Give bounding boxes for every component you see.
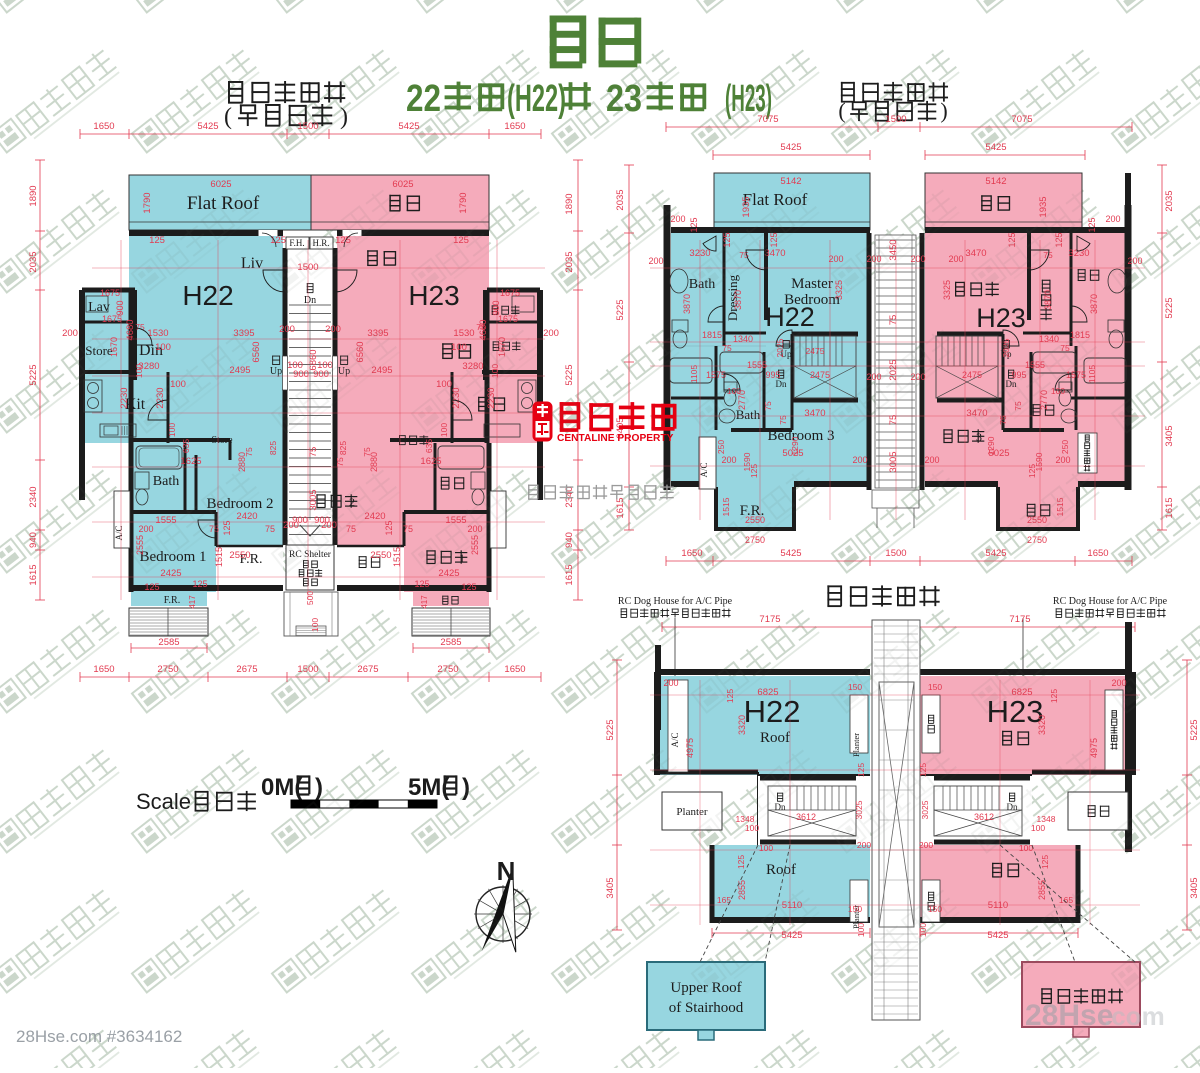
svg-text:5025: 5025 bbox=[782, 448, 803, 459]
svg-text:5225: 5225 bbox=[1189, 719, 1200, 740]
svg-text:3870: 3870 bbox=[1043, 290, 1053, 310]
svg-text:RC Dog House for A/C Pipe: RC Dog House for A/C Pipe bbox=[1053, 596, 1168, 607]
svg-text:75: 75 bbox=[722, 343, 732, 353]
svg-text:125: 125 bbox=[736, 855, 746, 869]
svg-text:125: 125 bbox=[270, 235, 286, 246]
svg-text:6825: 6825 bbox=[757, 687, 778, 698]
svg-text:H22: H22 bbox=[765, 302, 815, 332]
svg-text:75: 75 bbox=[763, 401, 773, 411]
svg-text:2855: 2855 bbox=[737, 880, 747, 900]
svg-text:75: 75 bbox=[308, 447, 319, 458]
svg-text:3325: 3325 bbox=[942, 280, 952, 300]
svg-text:75: 75 bbox=[888, 415, 899, 426]
svg-text:3870: 3870 bbox=[1089, 294, 1099, 314]
svg-text:125: 125 bbox=[414, 579, 429, 589]
svg-text:3870: 3870 bbox=[682, 294, 692, 314]
svg-text:Dn: Dn bbox=[304, 295, 316, 306]
svg-text:6025: 6025 bbox=[392, 179, 413, 190]
svg-text:200: 200 bbox=[924, 455, 939, 465]
svg-text:200: 200 bbox=[910, 254, 925, 264]
svg-text:(: ( bbox=[838, 98, 845, 123]
svg-text:3320: 3320 bbox=[1037, 715, 1047, 735]
svg-text:1340: 1340 bbox=[1039, 334, 1059, 344]
svg-text:200: 200 bbox=[138, 524, 153, 534]
svg-text:200: 200 bbox=[828, 254, 843, 264]
svg-text:F.H.: F.H. bbox=[289, 238, 304, 248]
svg-text:2425: 2425 bbox=[438, 568, 459, 579]
svg-text:125: 125 bbox=[725, 689, 735, 703]
svg-text:900: 900 bbox=[491, 300, 501, 315]
svg-text:3470: 3470 bbox=[804, 408, 825, 419]
svg-text:1555: 1555 bbox=[155, 515, 176, 526]
svg-text:125: 125 bbox=[1040, 855, 1050, 869]
svg-text:3612: 3612 bbox=[796, 812, 816, 822]
svg-text:5225: 5225 bbox=[615, 299, 626, 320]
svg-text:2475: 2475 bbox=[810, 370, 830, 380]
svg-text:635: 635 bbox=[424, 439, 434, 453]
svg-text:500: 500 bbox=[305, 591, 315, 605]
svg-text:5142: 5142 bbox=[780, 176, 801, 187]
svg-text:5025: 5025 bbox=[988, 448, 1009, 459]
svg-text:CENTALINE PROPERTY: CENTALINE PROPERTY bbox=[557, 433, 674, 444]
svg-text:2035: 2035 bbox=[1164, 190, 1175, 211]
svg-text:2025: 2025 bbox=[1001, 338, 1011, 357]
svg-text:Store: Store bbox=[211, 435, 233, 446]
svg-text:(H22): (H22) bbox=[507, 78, 566, 120]
svg-text:1105: 1105 bbox=[689, 365, 699, 384]
svg-text:200: 200 bbox=[857, 840, 871, 850]
svg-text:3470: 3470 bbox=[965, 248, 986, 259]
svg-text:A/C: A/C bbox=[699, 462, 709, 477]
svg-text:250: 250 bbox=[716, 440, 726, 454]
svg-text:1935: 1935 bbox=[741, 196, 752, 217]
svg-text:5110: 5110 bbox=[988, 900, 1008, 911]
svg-text:1790: 1790 bbox=[142, 192, 153, 213]
svg-text:22: 22 bbox=[406, 78, 441, 120]
svg-text:4975: 4975 bbox=[685, 738, 695, 758]
svg-text:125: 125 bbox=[192, 579, 207, 589]
svg-text:5425: 5425 bbox=[780, 548, 801, 559]
svg-text:0M(: 0M( bbox=[261, 774, 302, 801]
svg-text:5225: 5225 bbox=[605, 719, 616, 740]
svg-text:1890: 1890 bbox=[564, 193, 575, 214]
svg-text:125: 125 bbox=[384, 520, 394, 535]
svg-text:125: 125 bbox=[144, 582, 159, 592]
svg-text:635: 635 bbox=[181, 439, 191, 453]
svg-text:(: ( bbox=[224, 104, 232, 130]
svg-text:2585: 2585 bbox=[158, 637, 179, 648]
svg-text:200: 200 bbox=[948, 254, 963, 264]
svg-text:2675: 2675 bbox=[357, 664, 378, 675]
svg-text:2425: 2425 bbox=[160, 568, 181, 579]
svg-text:2420: 2420 bbox=[236, 511, 257, 522]
svg-text:Roof: Roof bbox=[766, 862, 796, 878]
svg-text:H22: H22 bbox=[744, 694, 801, 729]
svg-text:75: 75 bbox=[888, 315, 899, 326]
svg-text:3405: 3405 bbox=[1164, 425, 1175, 446]
svg-text:200: 200 bbox=[721, 455, 736, 465]
svg-text:3395: 3395 bbox=[233, 328, 254, 339]
svg-text:100: 100 bbox=[310, 618, 320, 632]
svg-text:3005: 3005 bbox=[888, 451, 899, 472]
svg-text:1515: 1515 bbox=[392, 547, 402, 567]
svg-text:995: 995 bbox=[1011, 370, 1026, 380]
svg-text:3405: 3405 bbox=[605, 877, 616, 898]
svg-text:150: 150 bbox=[848, 904, 862, 914]
svg-text:2585: 2585 bbox=[440, 637, 461, 648]
svg-text:125: 125 bbox=[461, 582, 476, 592]
svg-text:Up: Up bbox=[270, 366, 282, 377]
svg-text:75: 75 bbox=[403, 524, 413, 534]
svg-text:250: 250 bbox=[1060, 440, 1070, 454]
svg-text:200: 200 bbox=[670, 214, 685, 224]
svg-text:): ) bbox=[315, 774, 323, 801]
svg-text:100: 100 bbox=[759, 843, 773, 853]
svg-text:100: 100 bbox=[167, 423, 177, 437]
svg-text:3: 3 bbox=[976, 430, 982, 444]
svg-text:N: N bbox=[497, 856, 516, 886]
svg-text:1615: 1615 bbox=[28, 564, 39, 585]
svg-text:1675: 1675 bbox=[500, 288, 520, 298]
svg-text:Planter: Planter bbox=[851, 733, 861, 757]
svg-text:5142: 5142 bbox=[985, 176, 1006, 187]
svg-text:Bedroom 3: Bedroom 3 bbox=[767, 428, 834, 444]
svg-text:2340: 2340 bbox=[28, 486, 39, 507]
svg-text:5225: 5225 bbox=[564, 364, 575, 385]
svg-text:200: 200 bbox=[866, 372, 881, 382]
svg-text:28Hse: 28Hse bbox=[1025, 999, 1113, 1032]
svg-text:150: 150 bbox=[928, 682, 942, 692]
svg-text:825: 825 bbox=[268, 441, 278, 455]
svg-text:5225: 5225 bbox=[1164, 297, 1175, 318]
svg-text:3025: 3025 bbox=[920, 800, 930, 819]
svg-text:125: 125 bbox=[222, 520, 232, 535]
svg-text:75: 75 bbox=[362, 447, 372, 457]
svg-text:75: 75 bbox=[335, 457, 345, 467]
svg-text:2230: 2230 bbox=[486, 387, 497, 408]
svg-text:100: 100 bbox=[439, 423, 449, 437]
svg-text:75: 75 bbox=[265, 524, 275, 534]
svg-text:200: 200 bbox=[1055, 455, 1070, 465]
svg-text:900: 900 bbox=[293, 369, 309, 380]
svg-text:200: 200 bbox=[663, 678, 678, 688]
svg-text:200: 200 bbox=[62, 328, 78, 339]
svg-text:of Stairhood: of Stairhood bbox=[669, 1000, 744, 1016]
svg-text:1650: 1650 bbox=[93, 664, 114, 675]
svg-text:1105: 1105 bbox=[1087, 365, 1097, 384]
svg-text:200: 200 bbox=[852, 455, 867, 465]
svg-text:900: 900 bbox=[292, 515, 308, 526]
svg-text:3230: 3230 bbox=[1068, 248, 1089, 259]
svg-text:1675: 1675 bbox=[100, 288, 120, 298]
svg-text:): ) bbox=[940, 98, 947, 123]
svg-text:1530: 1530 bbox=[453, 328, 474, 339]
svg-text:75: 75 bbox=[1060, 343, 1070, 353]
svg-text:5M(: 5M( bbox=[408, 774, 449, 801]
svg-text:200: 200 bbox=[1105, 214, 1120, 224]
svg-text:H23: H23 bbox=[408, 280, 459, 311]
svg-text:Planter: Planter bbox=[676, 806, 707, 818]
svg-text:417: 417 bbox=[420, 595, 429, 609]
svg-text:Bath: Bath bbox=[153, 474, 179, 489]
svg-text:100: 100 bbox=[1019, 843, 1033, 853]
svg-text:7175: 7175 bbox=[759, 614, 780, 625]
svg-text:A/C: A/C bbox=[114, 525, 124, 540]
svg-text:1650: 1650 bbox=[504, 664, 525, 675]
svg-text:1890: 1890 bbox=[28, 185, 39, 206]
svg-text:1625: 1625 bbox=[180, 456, 201, 467]
svg-text:2035: 2035 bbox=[615, 189, 626, 210]
svg-text:200: 200 bbox=[543, 328, 559, 339]
svg-text:1575: 1575 bbox=[706, 370, 726, 380]
svg-text:.com: .com bbox=[1104, 1001, 1165, 1031]
svg-text:Roof: Roof bbox=[760, 730, 790, 746]
svg-text:417: 417 bbox=[188, 595, 197, 609]
svg-text:5425: 5425 bbox=[780, 142, 801, 153]
svg-text:75: 75 bbox=[476, 322, 486, 332]
svg-text:6560: 6560 bbox=[251, 341, 262, 362]
svg-text:3612: 3612 bbox=[974, 812, 994, 822]
svg-text:900: 900 bbox=[115, 300, 125, 315]
svg-text:1935: 1935 bbox=[1038, 196, 1049, 217]
svg-text:3405: 3405 bbox=[1189, 877, 1200, 898]
svg-text:825: 825 bbox=[338, 441, 348, 455]
svg-text:3320: 3320 bbox=[737, 715, 747, 735]
svg-text:5425: 5425 bbox=[197, 121, 218, 132]
svg-text:100: 100 bbox=[451, 342, 467, 353]
svg-text:1650: 1650 bbox=[93, 121, 114, 132]
svg-text:200: 200 bbox=[648, 256, 663, 266]
svg-text:1500: 1500 bbox=[885, 548, 906, 559]
svg-text:2855: 2855 bbox=[1037, 880, 1047, 900]
svg-text:200: 200 bbox=[325, 324, 341, 335]
svg-text:100: 100 bbox=[155, 342, 171, 353]
svg-text:1815: 1815 bbox=[702, 330, 722, 340]
svg-text:7175: 7175 bbox=[1009, 614, 1030, 625]
svg-text:1340: 1340 bbox=[733, 334, 753, 344]
svg-text:100: 100 bbox=[856, 923, 866, 937]
svg-text:1515: 1515 bbox=[214, 547, 224, 567]
svg-text:1625: 1625 bbox=[420, 456, 441, 467]
svg-text:Master: Master bbox=[791, 276, 833, 292]
svg-text:100: 100 bbox=[134, 364, 144, 378]
svg-text:125: 125 bbox=[689, 217, 699, 232]
svg-text:3870: 3870 bbox=[733, 290, 743, 310]
svg-text:5425: 5425 bbox=[987, 930, 1008, 941]
svg-text:4975: 4975 bbox=[1089, 738, 1099, 758]
svg-text:75: 75 bbox=[244, 447, 254, 457]
svg-text:125: 125 bbox=[1049, 689, 1059, 703]
svg-text:1515: 1515 bbox=[721, 497, 731, 516]
svg-text:2550: 2550 bbox=[229, 550, 250, 561]
svg-text:Liv: Liv bbox=[241, 255, 263, 272]
svg-text:1650: 1650 bbox=[1087, 548, 1108, 559]
svg-text:F.R.: F.R. bbox=[164, 595, 180, 606]
svg-text:RC Dog House for A/C Pipe: RC Dog House for A/C Pipe bbox=[618, 596, 733, 607]
svg-text:125: 125 bbox=[149, 235, 165, 246]
svg-text:H22: H22 bbox=[182, 280, 233, 311]
svg-text:Lav: Lav bbox=[88, 300, 110, 315]
svg-text:7075: 7075 bbox=[757, 114, 778, 125]
svg-text:2675: 2675 bbox=[236, 664, 257, 675]
svg-text:1650: 1650 bbox=[504, 121, 525, 132]
svg-text:2550: 2550 bbox=[370, 550, 391, 561]
svg-text:H23: H23 bbox=[976, 303, 1026, 333]
svg-text:6025: 6025 bbox=[210, 179, 231, 190]
svg-text:200: 200 bbox=[279, 324, 295, 335]
svg-text:1790: 1790 bbox=[458, 192, 469, 213]
svg-text:A/C: A/C bbox=[670, 732, 680, 747]
svg-text:75: 75 bbox=[778, 415, 788, 425]
svg-text:200: 200 bbox=[919, 840, 933, 850]
svg-text:2230: 2230 bbox=[119, 387, 130, 408]
